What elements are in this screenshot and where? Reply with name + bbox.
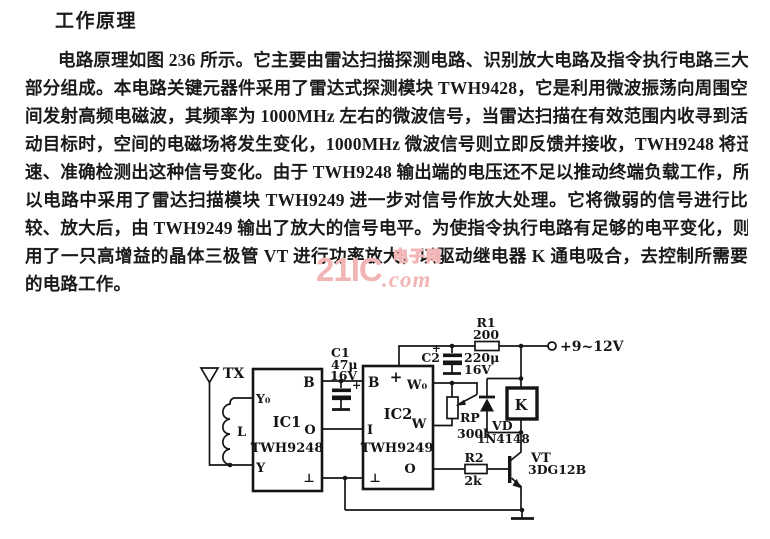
label-ic1-pin-gnd: ⊥ xyxy=(303,471,315,485)
transistor-vt-base-bar xyxy=(508,456,511,483)
junction-dot xyxy=(228,463,233,468)
document-page: { "page": { "title": "工作原理" }, "article"… xyxy=(0,0,770,539)
label-ic1-name: IC1 xyxy=(273,414,301,431)
antenna-icon xyxy=(201,368,218,383)
label-vd-name: VD xyxy=(491,418,513,433)
label-r1-value: 200 xyxy=(473,327,499,342)
label-ic1-pin-o: O xyxy=(304,423,315,438)
junction-dot xyxy=(520,508,525,513)
diode-vd-triangle xyxy=(480,399,494,412)
label-ic2-pin-i: I xyxy=(367,423,373,438)
circuit-figure: TX L B Y₀ IC1 TWH9248 Y O ⊥ B + W₀ I W I… xyxy=(0,0,770,539)
label-relay: K xyxy=(515,397,529,414)
label-ic2-pin-b: B xyxy=(368,375,379,391)
junction-dot xyxy=(519,376,524,381)
junction-dot xyxy=(450,381,455,386)
label-vt-part: 3DG12B xyxy=(528,462,586,477)
label-c2-name: C2 xyxy=(421,350,440,365)
supply-terminal xyxy=(548,342,556,350)
label-ic2-name: IC2 xyxy=(384,406,412,423)
label-ic2-pin-plus: + xyxy=(390,368,403,386)
label-coil: L xyxy=(237,425,246,440)
label-c1-polarity: + xyxy=(352,379,361,392)
label-ic2-pin-o: O xyxy=(404,462,415,477)
label-r2-value: 2k xyxy=(464,473,482,488)
label-antenna: TX xyxy=(223,366,244,382)
potentiometer-rp xyxy=(447,397,458,419)
label-r2-name: R2 xyxy=(464,450,483,465)
junction-dot xyxy=(343,476,348,481)
label-ic1-part: TWH9248 xyxy=(251,441,324,456)
junction-dot xyxy=(450,344,455,349)
label-ic1-pin-y0: Y₀ xyxy=(255,391,271,406)
label-ic2-pin-w: W xyxy=(411,417,427,432)
label-ic2-pin-w0: W₀ xyxy=(406,378,428,393)
label-rp-name: RP xyxy=(460,410,480,425)
label-vd-part: 1N4148 xyxy=(477,432,530,446)
label-supply: +9~12V xyxy=(560,339,625,355)
label-ic1-pin-b: B xyxy=(303,375,314,391)
junction-dot xyxy=(519,344,524,349)
label-ic2-part: TWH9249 xyxy=(361,441,434,456)
label-ic2-pin-gnd: ⊥ xyxy=(369,471,381,485)
label-ic1-pin-y: Y xyxy=(255,461,266,476)
label-c2-voltage: 16V xyxy=(464,362,491,377)
